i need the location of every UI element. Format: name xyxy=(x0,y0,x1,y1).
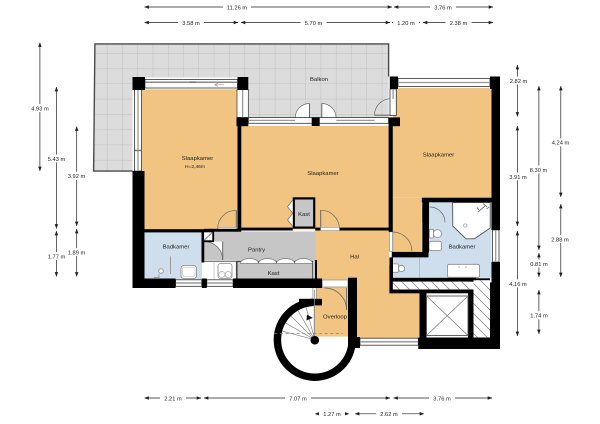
svg-text:Badkamer: Badkamer xyxy=(449,244,476,250)
svg-text:1.74 m: 1.74 m xyxy=(530,314,548,320)
svg-text:1.77 m: 1.77 m xyxy=(48,254,66,260)
svg-text:2.82 m: 2.82 m xyxy=(510,79,528,85)
svg-text:Hal: Hal xyxy=(350,254,359,260)
svg-text:1.20 m: 1.20 m xyxy=(397,21,415,27)
svg-text:5.70 m: 5.70 m xyxy=(305,21,323,27)
svg-text:3.92 m: 3.92 m xyxy=(68,174,86,180)
svg-text:2.21 m: 2.21 m xyxy=(164,396,182,402)
svg-text:Pantry: Pantry xyxy=(248,247,265,253)
svg-text:Slaapkamer: Slaapkamer xyxy=(182,156,213,162)
svg-text:1.27 m: 1.27 m xyxy=(323,412,341,418)
svg-text:3.58 m: 3.58 m xyxy=(182,21,200,27)
svg-text:8.30 m: 8.30 m xyxy=(530,168,548,174)
svg-text:Kast: Kast xyxy=(298,212,310,218)
svg-text:Kast: Kast xyxy=(268,271,280,277)
svg-text:H=2,46m: H=2,46m xyxy=(185,164,205,170)
svg-text:Overloop: Overloop xyxy=(323,314,348,320)
svg-text:11.26 m: 11.26 m xyxy=(227,5,247,11)
svg-text:Slaapkamer: Slaapkamer xyxy=(423,152,454,158)
svg-text:2.62 m: 2.62 m xyxy=(380,412,398,418)
svg-text:2.38 m: 2.38 m xyxy=(450,21,468,27)
svg-text:3.91 m: 3.91 m xyxy=(509,175,527,181)
svg-text:4.93 m: 4.93 m xyxy=(31,106,49,112)
svg-text:Slaapkamer: Slaapkamer xyxy=(307,171,338,177)
svg-text:3.76 m: 3.76 m xyxy=(434,5,452,11)
svg-text:Balkon: Balkon xyxy=(310,77,328,83)
svg-text:2.88 m: 2.88 m xyxy=(551,237,569,243)
svg-text:4.16 m: 4.16 m xyxy=(509,282,527,288)
svg-text:5.43 m: 5.43 m xyxy=(48,157,66,163)
svg-text:3.76 m: 3.76 m xyxy=(433,396,451,402)
svg-text:0.81 m: 0.81 m xyxy=(530,262,548,268)
svg-text:7.07 m: 7.07 m xyxy=(289,396,307,402)
svg-text:1.89 m: 1.89 m xyxy=(68,250,86,256)
svg-text:Badkamer: Badkamer xyxy=(163,244,190,250)
svg-text:4.24 m: 4.24 m xyxy=(552,141,570,147)
